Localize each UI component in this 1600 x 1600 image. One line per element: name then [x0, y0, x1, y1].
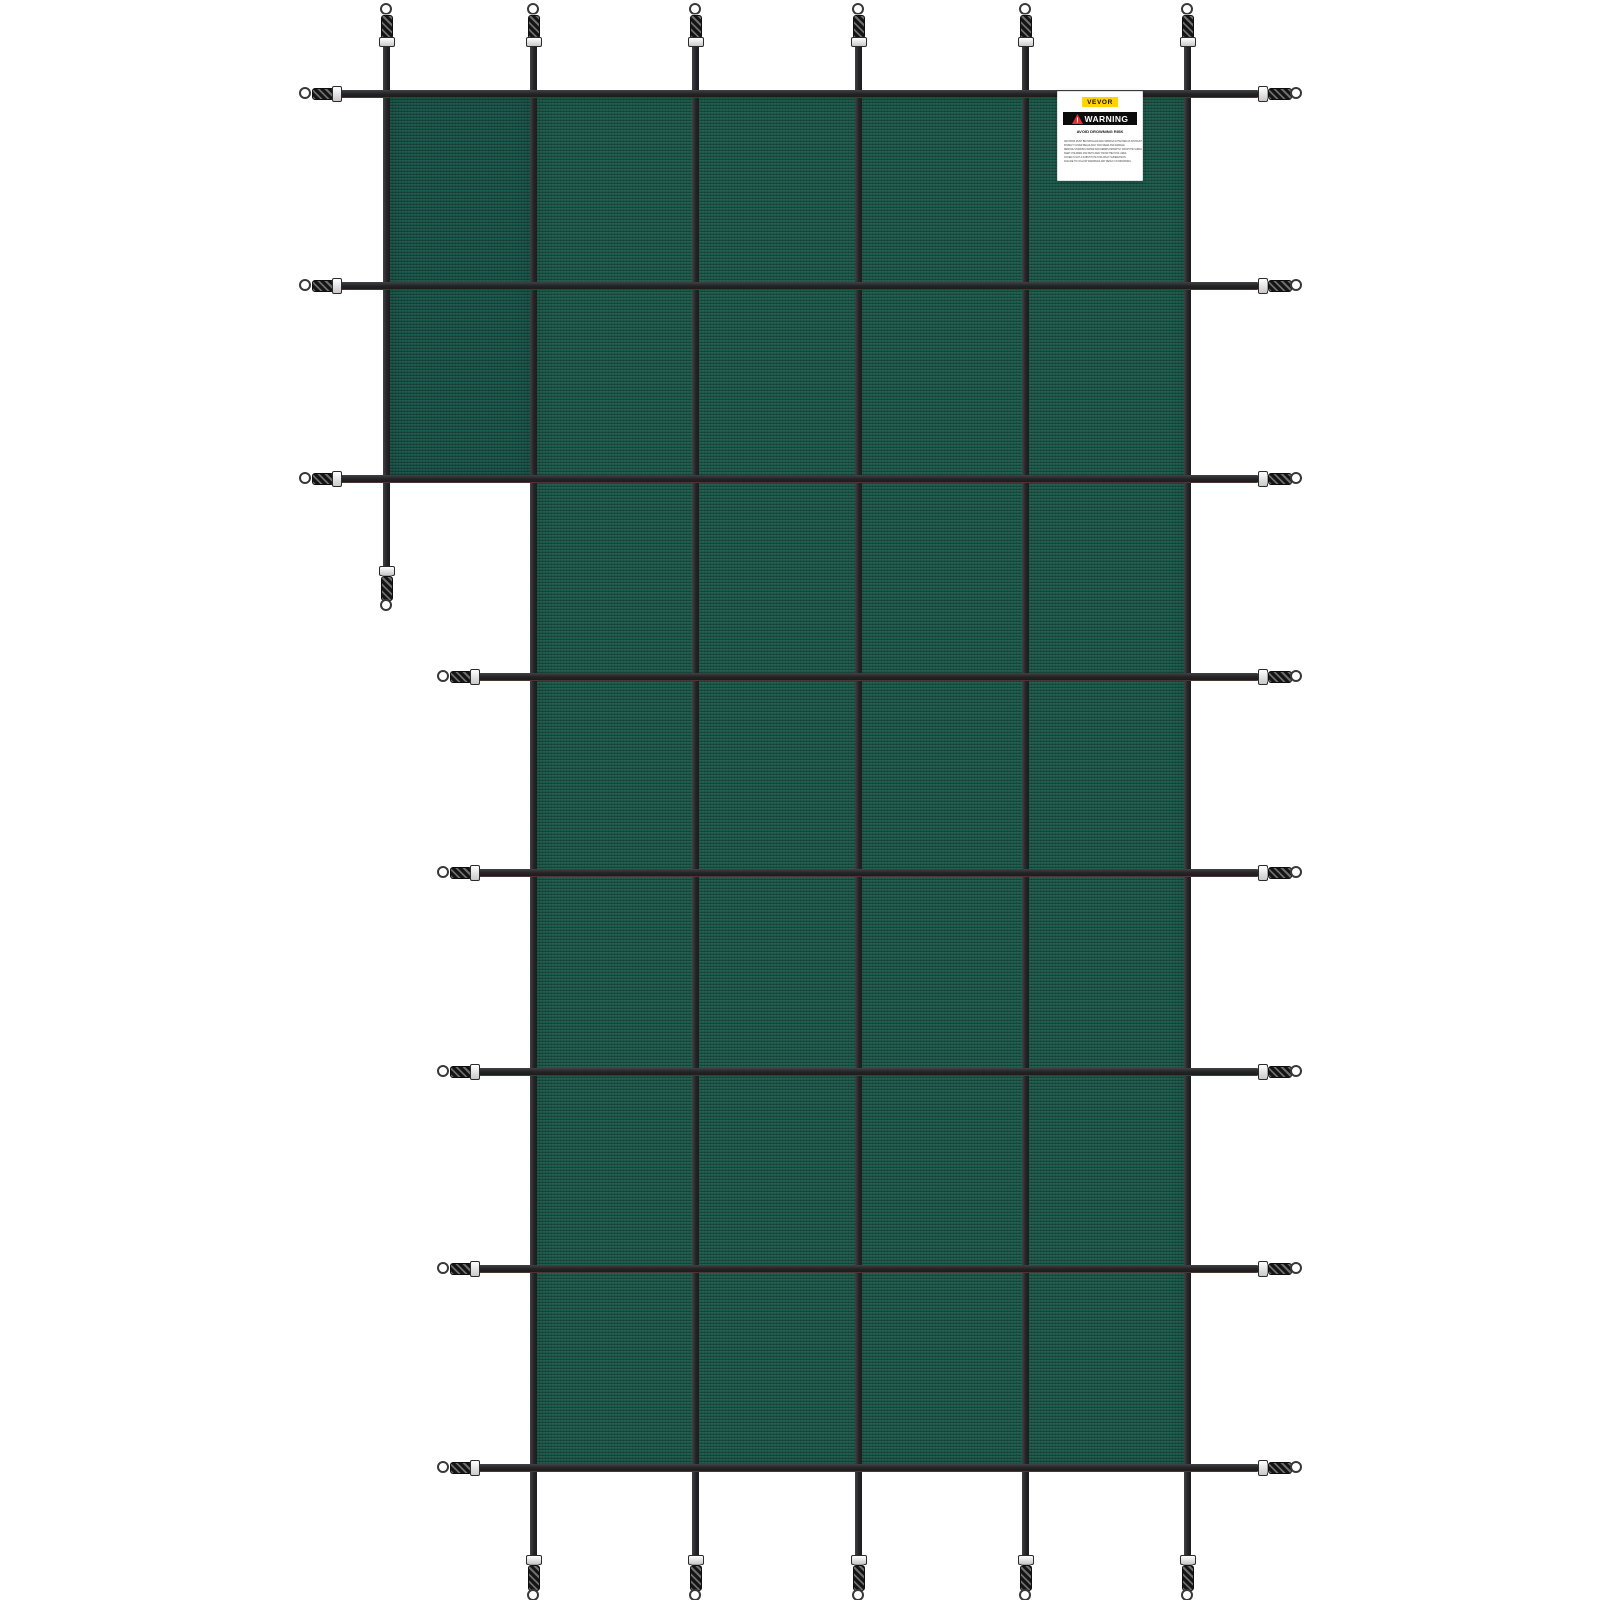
spring-buckle [1018, 1555, 1034, 1565]
spring-buckle [470, 865, 480, 881]
anchor-d-ring [527, 1589, 539, 1600]
anchor-d-ring [299, 279, 311, 291]
tension-spring [312, 88, 334, 100]
warning-triangle-icon: ! [1072, 114, 1083, 124]
anchor-d-ring [1290, 670, 1302, 682]
anchor-d-ring [1290, 1065, 1302, 1077]
spring-buckle [1258, 1261, 1268, 1277]
warning-line: KEEP CHILDREN AND PETS AWAY FROM THE POO… [1064, 152, 1136, 154]
spring-buckle [1018, 37, 1034, 47]
spring-buckle [688, 1555, 704, 1565]
tension-spring [1268, 671, 1292, 683]
spring-buckle [1258, 669, 1268, 685]
anchor-d-ring [380, 3, 392, 15]
anchor-d-ring [1290, 1262, 1302, 1274]
horizontal-strap [477, 1068, 1258, 1076]
warning-title-bar: ! WARNING [1063, 112, 1137, 125]
anchor-d-ring [852, 3, 864, 15]
anchor-d-ring [1290, 279, 1302, 291]
spring-buckle [1258, 278, 1268, 294]
anchor-d-ring [1290, 866, 1302, 878]
warning-label: VEVOR ! WARNING AVOID DROWNING RISK ANCH… [1057, 91, 1143, 181]
spring-buckle [526, 37, 542, 47]
spring-buckle [1258, 471, 1268, 487]
horizontal-strap [339, 475, 1258, 483]
tension-spring [1020, 1565, 1032, 1591]
anchor-d-ring [437, 1262, 449, 1274]
tension-spring [690, 15, 702, 39]
anchor-d-ring [1019, 1589, 1031, 1600]
vevor-logo: VEVOR [1082, 97, 1118, 107]
warning-line: COVER IS NOT A SUBSTITUTE FOR ADULT SUPE… [1064, 156, 1136, 158]
spring-buckle [470, 1460, 480, 1476]
spring-buckle [379, 566, 395, 576]
tension-spring [1268, 1066, 1292, 1078]
tension-spring [450, 671, 472, 683]
spring-buckle [470, 1064, 480, 1080]
warning-text-lines: ANCHORS MUST BE INSTALLED AND SPRINGS AT… [1064, 140, 1136, 164]
tension-spring [381, 15, 393, 39]
vertical-strap [1184, 44, 1191, 1556]
warning-line: REMOVE STANDING WATER AND DEBRIS PROMPTL… [1064, 148, 1136, 150]
spring-buckle [851, 37, 867, 47]
horizontal-strap [477, 1464, 1258, 1472]
tension-spring [1268, 473, 1292, 485]
warning-line: ANCHORS MUST BE INSTALLED AND SPRINGS AT… [1064, 140, 1136, 142]
anchor-d-ring [437, 670, 449, 682]
tension-spring [853, 15, 865, 39]
anchor-d-ring [1181, 1589, 1193, 1600]
tension-spring [312, 473, 334, 485]
anchor-d-ring [527, 3, 539, 15]
warning-line: INSPECT COVER REGULARLY FOR WEAR AND DAM… [1064, 144, 1136, 146]
vertical-strap [1022, 44, 1029, 1556]
tension-spring [1268, 867, 1292, 879]
tension-spring [1268, 1263, 1292, 1275]
anchor-d-ring [1290, 472, 1302, 484]
spring-buckle [1258, 86, 1268, 102]
tension-spring [381, 576, 393, 601]
anchor-d-ring [852, 1589, 864, 1600]
tension-spring [1268, 280, 1292, 292]
horizontal-strap [477, 673, 1258, 681]
tension-spring [1268, 1462, 1292, 1474]
warning-heading: AVOID DROWNING RISK [1058, 130, 1142, 134]
spring-buckle [1258, 1460, 1268, 1476]
tension-spring [450, 1462, 472, 1474]
tension-spring [1182, 1565, 1194, 1591]
horizontal-strap [477, 1265, 1258, 1273]
anchor-d-ring [1019, 3, 1031, 15]
tension-spring [853, 1565, 865, 1591]
tension-spring [450, 1263, 472, 1275]
product-photo-pool-cover: VEVOR ! WARNING AVOID DROWNING RISK ANCH… [0, 0, 1600, 1600]
anchor-d-ring [689, 1589, 701, 1600]
tension-spring [1020, 15, 1032, 39]
svg-text:!: ! [1076, 115, 1078, 123]
spring-buckle [332, 278, 342, 294]
spring-buckle [1180, 1555, 1196, 1565]
anchor-d-ring [1290, 87, 1302, 99]
spring-buckle [470, 669, 480, 685]
anchor-d-ring [1290, 1461, 1302, 1473]
warning-line: FAILURE TO FOLLOW WARNINGS MAY RESULT IN… [1064, 160, 1136, 162]
horizontal-strap [477, 869, 1258, 877]
tension-spring [528, 15, 540, 39]
tension-spring [450, 1066, 472, 1078]
tension-spring [690, 1565, 702, 1591]
anchor-d-ring [437, 1065, 449, 1077]
tension-spring [528, 1565, 540, 1591]
vertical-strap [855, 44, 862, 1556]
anchor-d-ring [437, 866, 449, 878]
anchor-d-ring [299, 87, 311, 99]
anchor-d-ring [689, 3, 701, 15]
anchor-d-ring [299, 472, 311, 484]
vertical-strap [383, 44, 390, 570]
spring-buckle [470, 1261, 480, 1277]
anchor-d-ring [1181, 3, 1193, 15]
tension-spring [450, 867, 472, 879]
vertical-strap [692, 44, 699, 1556]
spring-buckle [332, 86, 342, 102]
spring-buckle [1258, 1064, 1268, 1080]
horizontal-strap [339, 282, 1258, 290]
anchor-d-ring [437, 1461, 449, 1473]
spring-buckle [379, 37, 395, 47]
spring-buckle [1258, 865, 1268, 881]
spring-buckle [1180, 37, 1196, 47]
tension-spring [312, 280, 334, 292]
spring-buckle [851, 1555, 867, 1565]
spring-buckle [688, 37, 704, 47]
spring-buckle [526, 1555, 542, 1565]
anchor-d-ring [380, 599, 392, 611]
warning-title: WARNING [1085, 114, 1129, 124]
tension-spring [1268, 88, 1292, 100]
vertical-strap [530, 44, 537, 1556]
tension-spring [1182, 15, 1194, 39]
spring-buckle [332, 471, 342, 487]
